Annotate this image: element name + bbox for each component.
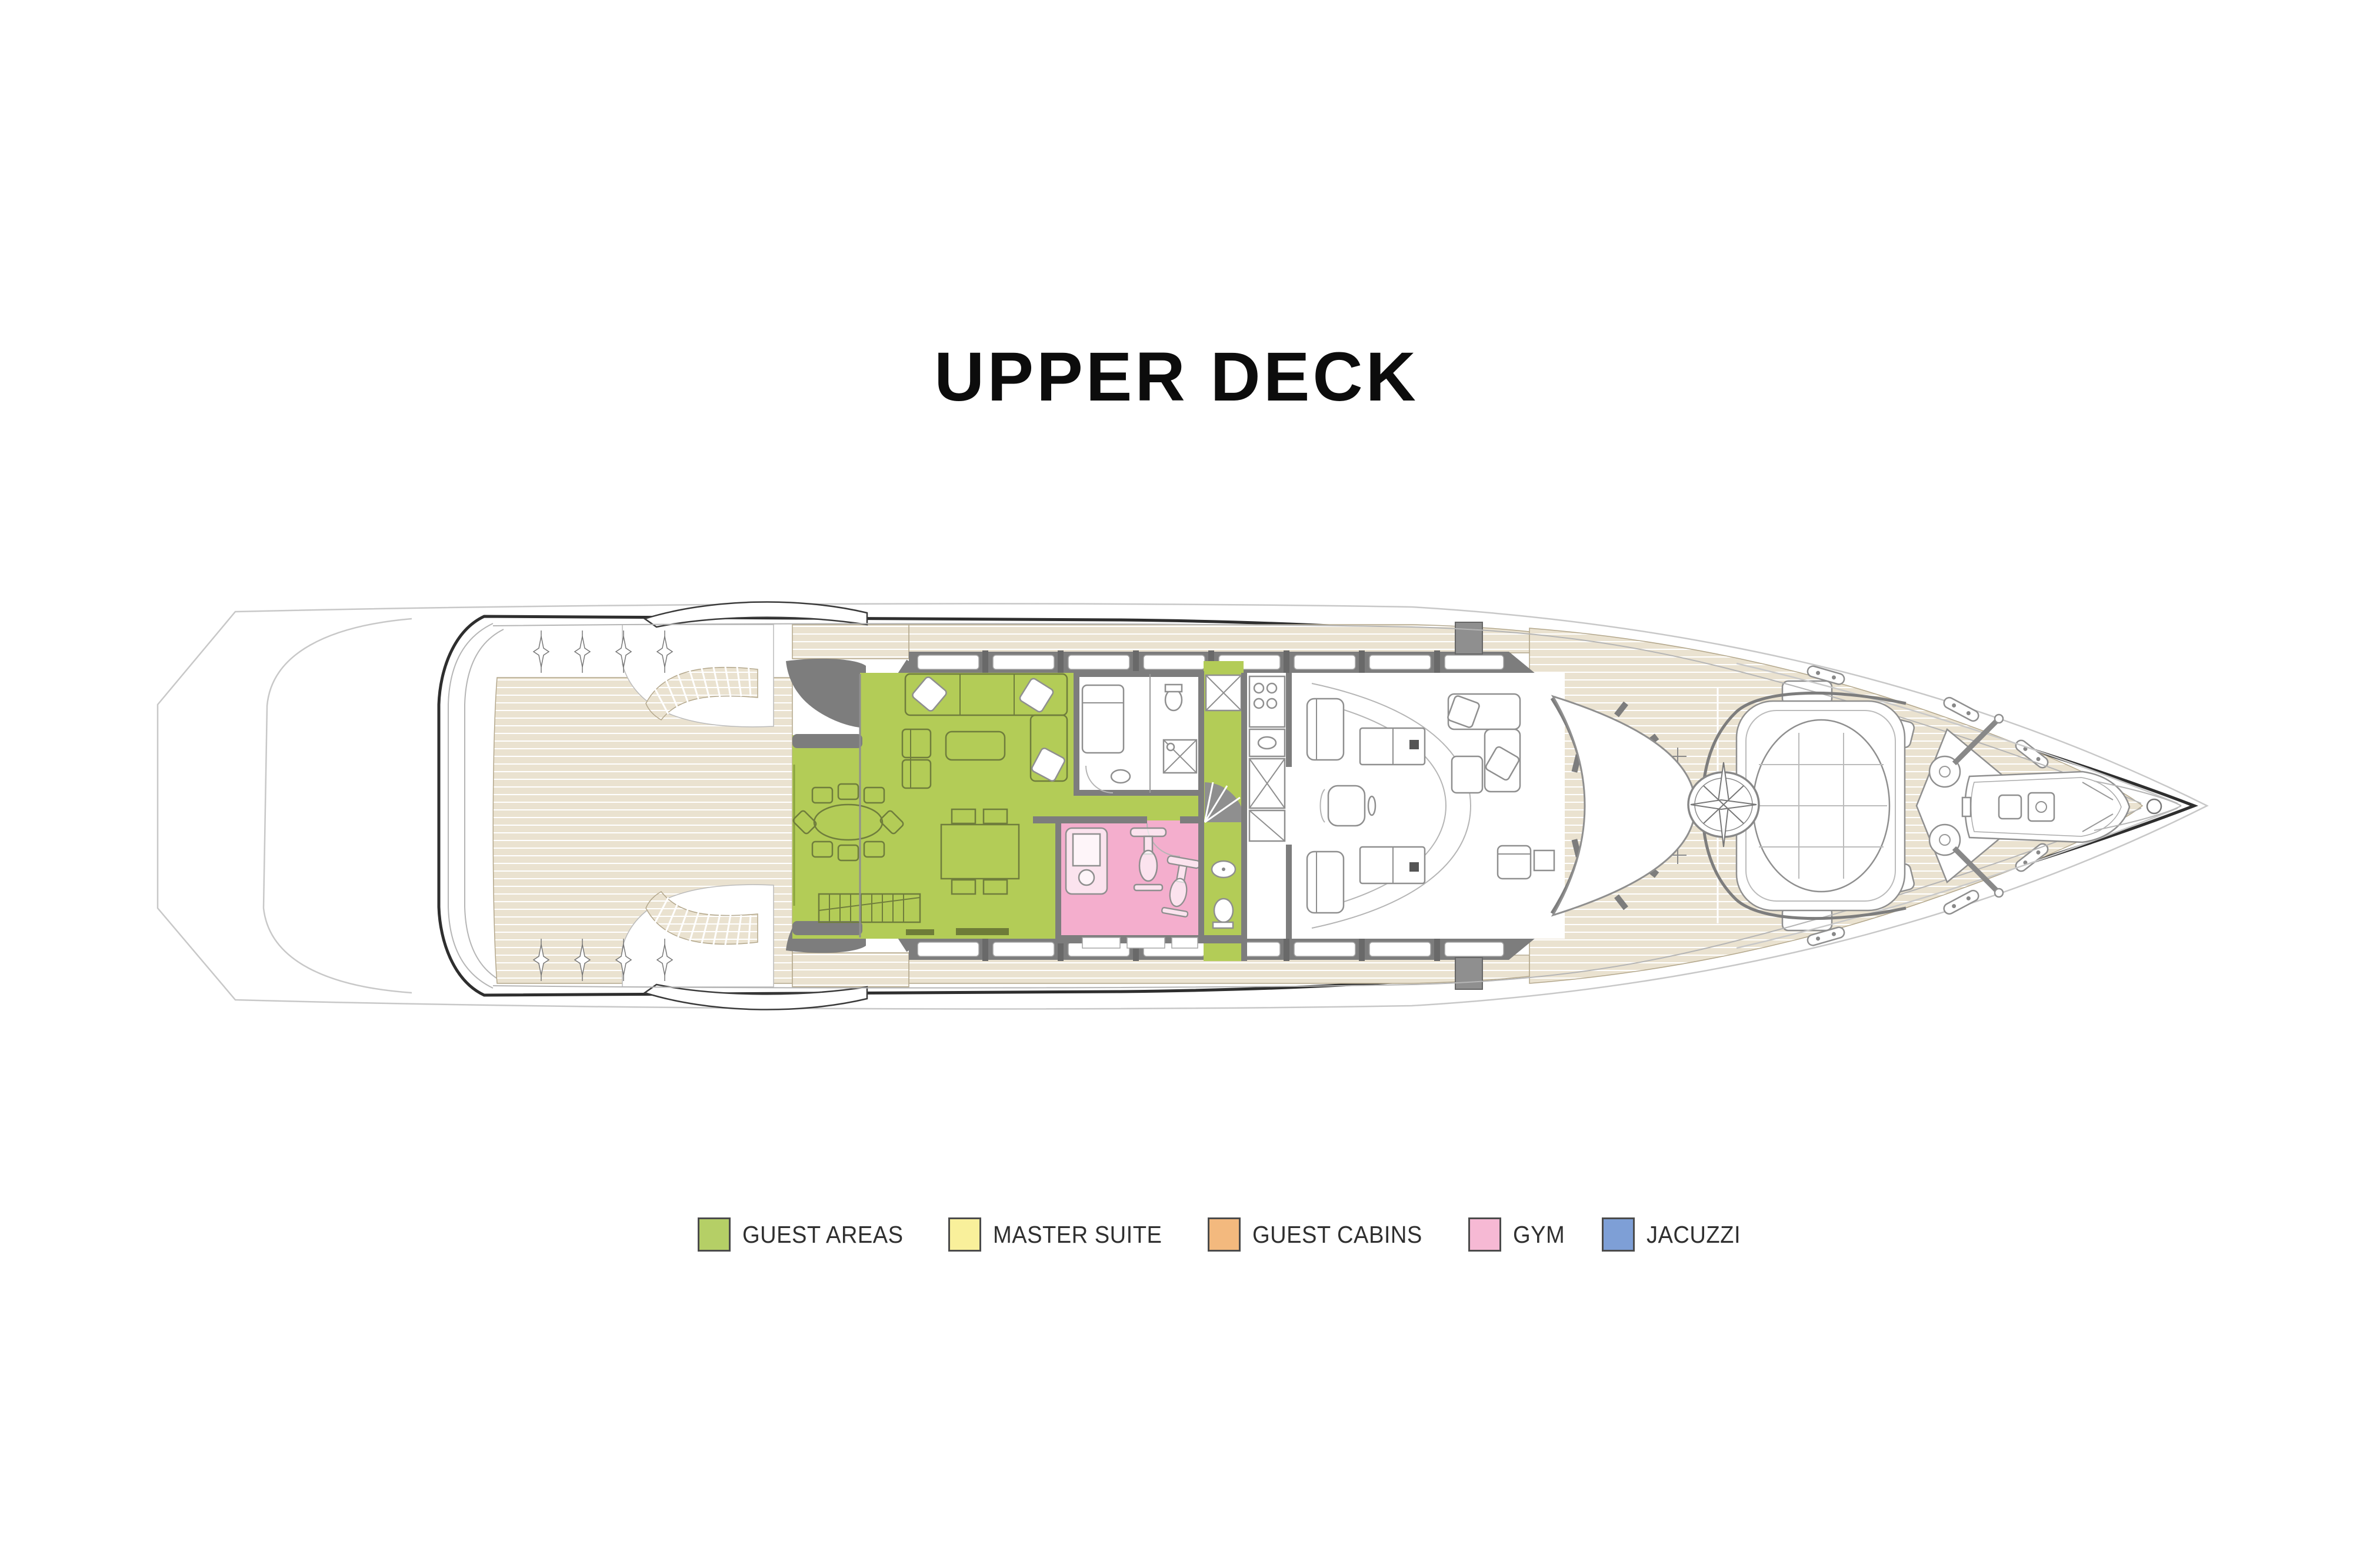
bridge-sofa <box>1307 852 1344 913</box>
side-table <box>1534 850 1554 870</box>
toilet-icon <box>1214 899 1233 922</box>
legend-swatch-guest-areas <box>698 1217 731 1252</box>
legend-label-guest-cabins: GUEST CABINS <box>1252 1223 1422 1247</box>
legend-swatch-master-suite <box>948 1217 981 1252</box>
page-title: UPPER DECK <box>0 342 2353 412</box>
tender-engine <box>1962 798 1971 816</box>
side-deck-teak <box>792 625 909 659</box>
legend-item-jacuzzi: JACUZZI <box>1602 1217 1748 1252</box>
day-head <box>1076 674 1201 793</box>
legend-item-gym: GYM <box>1468 1217 1569 1252</box>
boarding-gate <box>1455 622 1482 654</box>
legend-swatch-gym <box>1468 1217 1501 1252</box>
legend-item-guest-cabins: GUEST CABINS <box>1208 1217 1435 1252</box>
legend-label-gym: GYM <box>1513 1223 1565 1247</box>
toilet-icon <box>1165 689 1182 710</box>
dining-wall <box>792 734 862 748</box>
legend-item-guest-areas: GUEST AREAS <box>698 1217 915 1252</box>
legend-label-master-suite: MASTER SUITE <box>993 1223 1162 1247</box>
steering-wheel-icon <box>1368 796 1375 815</box>
fairlead <box>2147 799 2161 813</box>
daybed <box>1082 685 1124 753</box>
bridge-sofa <box>1307 699 1344 760</box>
deck-plan-drawing <box>0 0 2353 1568</box>
legend-swatch-jacuzzi <box>1602 1217 1635 1252</box>
tender-console <box>2028 793 2054 821</box>
legend-item-master-suite: MASTER SUITE <box>948 1217 1175 1252</box>
dining-wall <box>792 921 862 935</box>
tender-seat <box>1999 795 2021 819</box>
armchair <box>1498 846 1531 879</box>
page: { "title": "UPPER DECK", "legend": [ {"i… <box>0 0 2353 1568</box>
legend-label-guest-areas: GUEST AREAS <box>742 1223 904 1247</box>
tender-boat <box>1962 772 2129 842</box>
legend-label-jacuzzi: JACUZZI <box>1647 1223 1741 1247</box>
legend: GUEST AREAS MASTER SUITE GUEST CABINS GY… <box>698 1217 1748 1252</box>
gym-bench <box>1066 828 1107 894</box>
coffee-table <box>1452 756 1482 793</box>
basin-icon <box>1111 770 1130 783</box>
legend-swatch-guest-cabins <box>1208 1217 1241 1252</box>
